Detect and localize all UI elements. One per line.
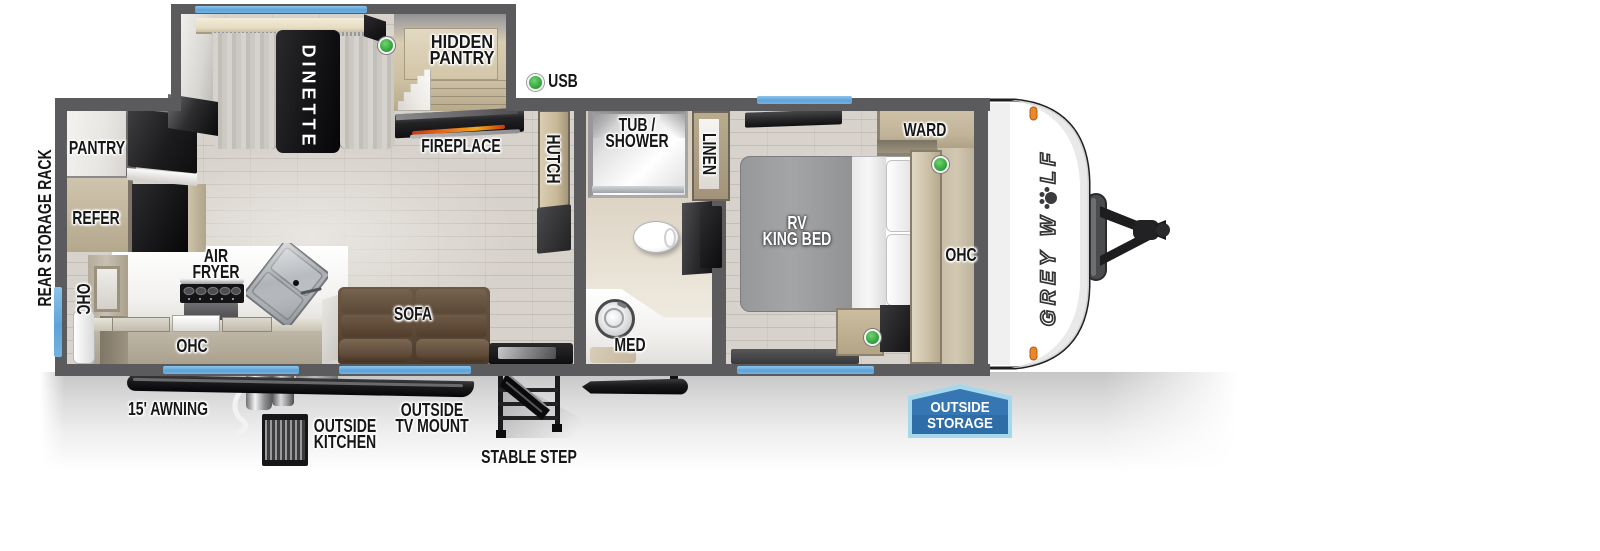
svg-text:STORAGE: STORAGE [927, 414, 993, 431]
svg-text:OUTSIDE: OUTSIDE [930, 398, 989, 415]
